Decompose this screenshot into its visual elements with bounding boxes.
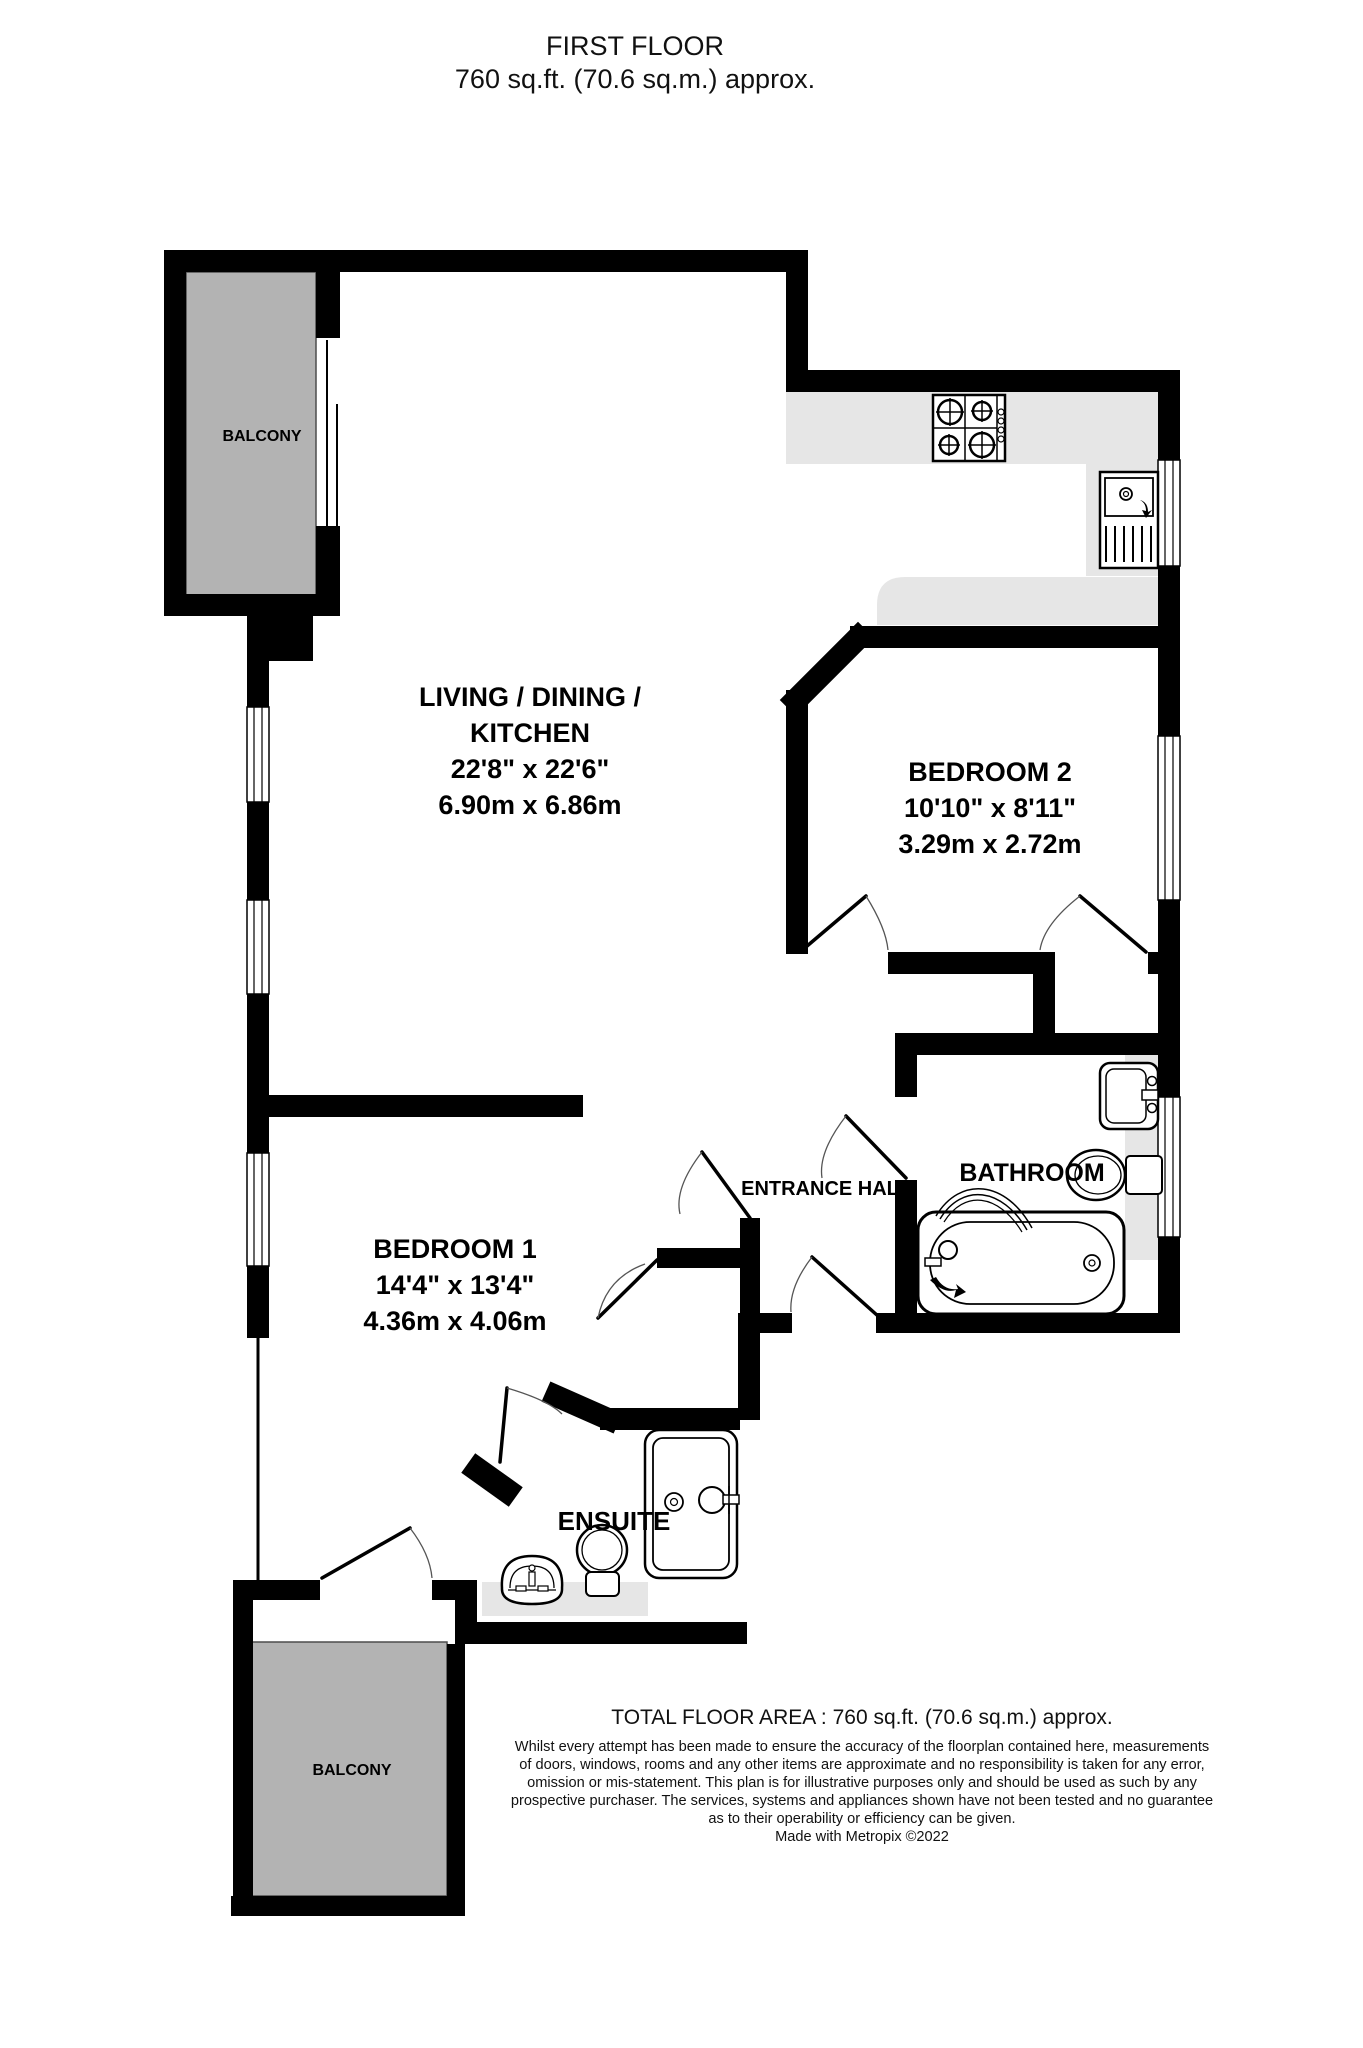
hob-icon (933, 395, 1005, 461)
bedroom1-label: BEDROOM 1 (373, 1234, 537, 1264)
kitchen-sink-icon (1100, 472, 1158, 568)
window-bedroom2-right (1158, 736, 1180, 900)
door-bedroom1 (598, 1260, 657, 1318)
shower-icon (645, 1430, 739, 1578)
plan-footer: TOTAL FLOOR AREA : 760 sq.ft. (70.6 sq.m… (362, 1706, 1362, 1847)
ensuite-label: ENSUITE (558, 1506, 671, 1536)
living-dims-imperial: 22'8" x 22'6" (451, 754, 610, 784)
disclaimer-line: omission or mis-statement. This plan is … (362, 1774, 1362, 1792)
living-label-line1: LIVING / DINING / (419, 682, 642, 712)
living-label-line2: KITCHEN (470, 718, 590, 748)
bedroom1-dims-metric: 4.36m x 4.06m (363, 1306, 546, 1336)
window-living-left-1 (247, 707, 269, 802)
ensuite-basin-icon (502, 1556, 562, 1604)
bedroom2-dims-imperial: 10'10" x 8'11" (904, 793, 1076, 823)
door-bedroom2 (1040, 896, 1146, 952)
balcony-top-label: BALCONY (222, 428, 301, 445)
window-kitchen-right (1158, 460, 1180, 566)
disclaimer-line: prospective purchaser. The services, sys… (362, 1792, 1362, 1810)
window-bedroom1-left (247, 1153, 269, 1266)
door-living-hall (800, 896, 888, 952)
door-kitchen-hall (679, 1152, 750, 1218)
entrance-hall-label: ENTRANCE HAL (741, 1178, 899, 1200)
door-balcony-bedroom1 (322, 1528, 432, 1578)
disclaimer-line: of doors, windows, rooms and any other i… (362, 1756, 1362, 1774)
disclaimer-line: as to their operability or efficiency ca… (362, 1810, 1362, 1828)
bedroom2-dims-metric: 3.29m x 2.72m (898, 829, 1081, 859)
bath-icon (918, 1189, 1124, 1314)
window-living-left-2 (247, 900, 269, 994)
bathroom-label: BATHROOM (959, 1159, 1104, 1187)
living-dims-metric: 6.90m x 6.86m (438, 790, 621, 820)
bedroom1-dims-imperial: 14'4" x 13'4" (376, 1270, 535, 1300)
door-entrance (791, 1257, 878, 1316)
door-bathroom (822, 1116, 907, 1178)
bedroom2-label: BEDROOM 2 (908, 757, 1072, 787)
disclaimer-line: Whilst every attempt has been made to en… (362, 1738, 1362, 1756)
total-floor-area: TOTAL FLOOR AREA : 760 sq.ft. (70.6 sq.m… (362, 1706, 1362, 1730)
metropix-credit: Made with Metropix ©2022 (362, 1828, 1362, 1846)
floorplan-page: FIRST FLOOR 760 sq.ft. (70.6 sq.m.) appr… (0, 0, 1363, 2048)
bathroom-basin-icon (1100, 1063, 1158, 1129)
